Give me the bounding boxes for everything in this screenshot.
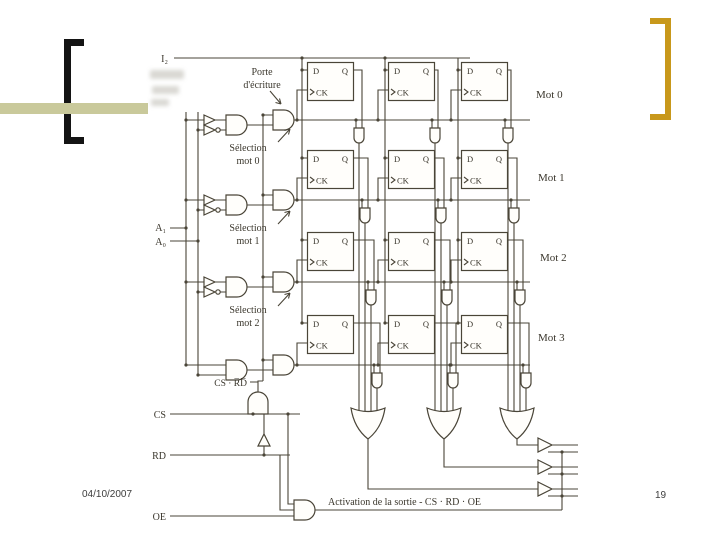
cs-label: CS — [154, 410, 166, 421]
word-label-2: Mot 2 — [540, 252, 567, 264]
memory-circuit-diagram: D Q CK — [0, 0, 720, 540]
inverter-bubble — [216, 208, 220, 212]
inverter-gate — [204, 287, 215, 297]
tri-state-buffer — [538, 482, 552, 496]
and-gate — [226, 277, 247, 297]
buffer-gate — [204, 115, 215, 125]
and-gate — [354, 128, 364, 143]
selection-label-2-line2: mot 2 — [236, 318, 259, 329]
rd-label: RD — [152, 451, 166, 462]
inverter-bubble — [216, 128, 220, 132]
memory-array — [308, 63, 508, 354]
inverter-gate — [204, 205, 215, 215]
flipflop-cell — [308, 63, 354, 101]
and-gate — [226, 360, 247, 380]
output-or-gates — [351, 408, 534, 439]
and-gate — [273, 190, 294, 210]
oe-label: OE — [153, 512, 166, 523]
activation-label: Activation de la sortie - CS · RD · OE — [328, 497, 481, 508]
address-a0-label: A₀ — [155, 237, 166, 248]
flipflop-cell — [389, 316, 435, 354]
decoder-gates — [204, 115, 247, 380]
word-label-0: Mot 0 — [536, 89, 563, 101]
slide-background: D Q CK — [0, 0, 720, 540]
flipflop-cell — [462, 63, 508, 101]
flipflop-cell — [308, 233, 354, 271]
flipflop-cell — [308, 151, 354, 189]
buffer-gate — [204, 277, 215, 287]
selection-label-0-line2: mot 0 — [236, 156, 259, 167]
flipflop-cell — [462, 151, 508, 189]
or-gate — [351, 408, 385, 439]
buffer-gate — [204, 195, 215, 205]
and-gate — [226, 195, 247, 215]
slide-date: 04/10/2007 — [82, 489, 132, 500]
and-gate — [430, 128, 440, 143]
or-gate — [427, 408, 461, 439]
or-gate — [500, 408, 534, 439]
flipflop-cell — [308, 316, 354, 354]
word-label-1: Mot 1 — [538, 172, 565, 184]
and-gate — [436, 208, 446, 223]
inverter-bubble — [216, 290, 220, 294]
and-gate — [448, 373, 458, 388]
and-gate — [226, 115, 247, 135]
flipflop-cell — [389, 63, 435, 101]
selection-label-1-line1: Sélection — [229, 223, 266, 234]
address-a1-label: A₁ — [155, 223, 166, 234]
flipflop-cell — [462, 316, 508, 354]
write-gate-label-line1: Porte — [251, 67, 273, 78]
and-gate — [503, 128, 513, 143]
and-gate — [372, 373, 382, 388]
and-gate — [515, 290, 525, 305]
and-gate — [273, 355, 294, 375]
write-enable-and-gate — [248, 392, 268, 414]
selection-label-1-line2: mot 1 — [236, 236, 259, 247]
and-gate — [521, 373, 531, 388]
flipflop-cell — [462, 233, 508, 271]
flipflop-cell — [389, 233, 435, 271]
write-enable-label: CS · R̅D̅ — [214, 378, 247, 389]
and-gate — [442, 290, 452, 305]
write-gates — [273, 110, 294, 375]
and-gate — [273, 272, 294, 292]
word-label-3: Mot 3 — [538, 332, 565, 344]
selection-label-0-line1: Sélection — [229, 143, 266, 154]
slide-page-number: 19 — [655, 490, 666, 501]
flipflop-cell — [389, 151, 435, 189]
selection-label-2-line1: Sélection — [229, 305, 266, 316]
and-gate — [509, 208, 519, 223]
and-gate — [366, 290, 376, 305]
tri-state-buffer — [538, 460, 552, 474]
tri-state-buffer — [538, 438, 552, 452]
and-gate — [273, 110, 294, 130]
write-gate-label-line2: d'écriture — [243, 80, 281, 91]
and-gate — [360, 208, 370, 223]
data-input-label: I₂ — [161, 54, 168, 65]
activation-and-gate — [294, 500, 315, 520]
inverter-gate — [258, 434, 270, 446]
inverter-gate — [204, 125, 215, 135]
